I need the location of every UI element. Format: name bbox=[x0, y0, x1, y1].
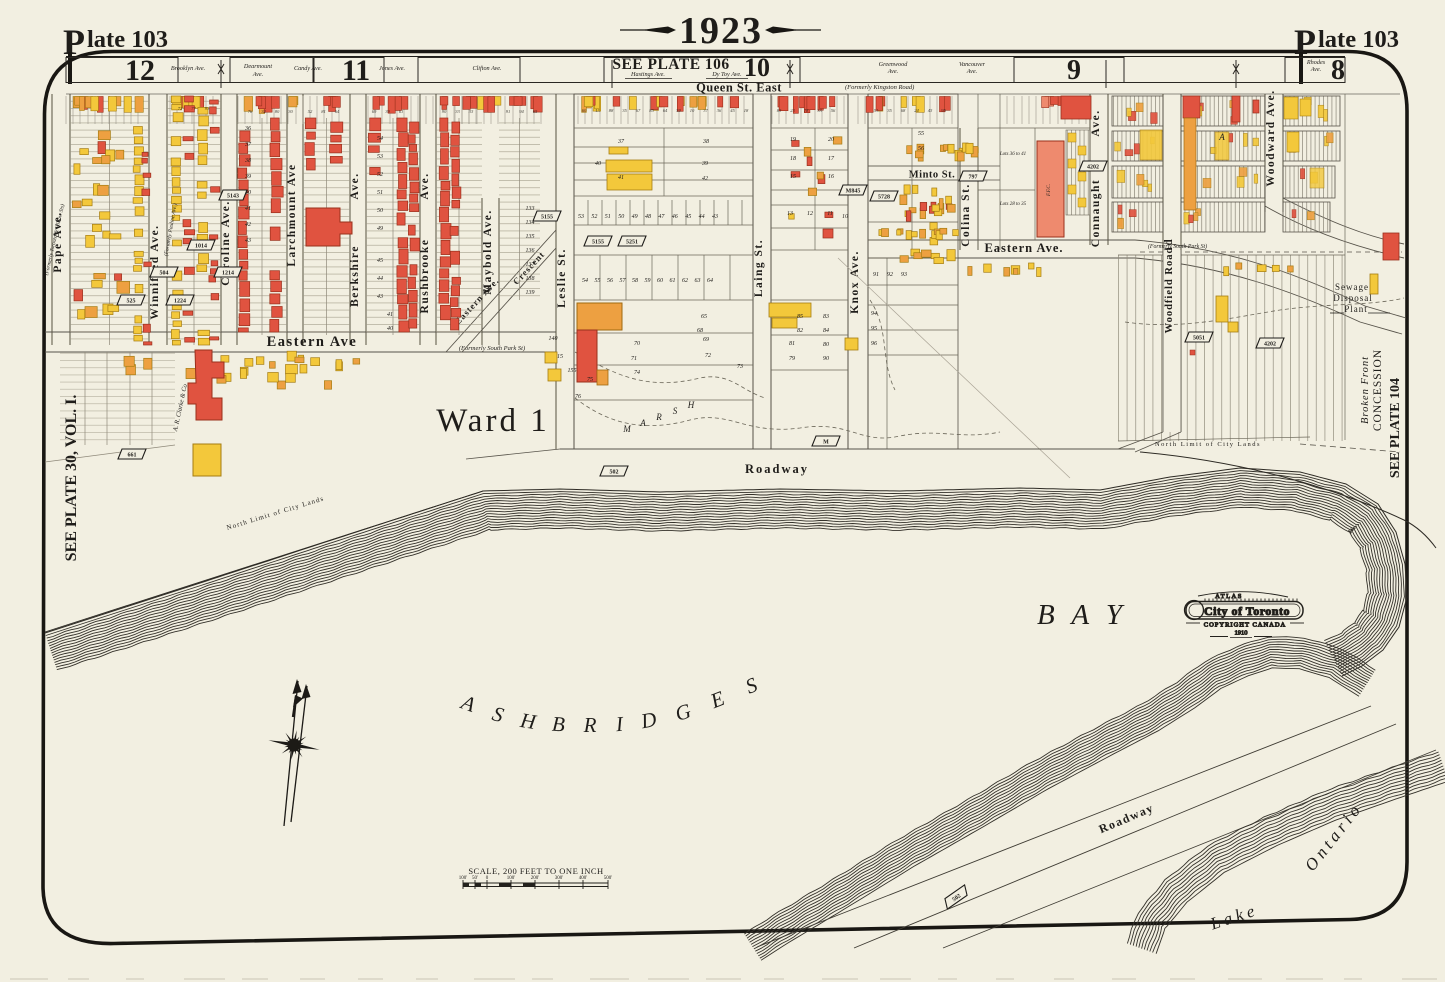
svg-text:A: A bbox=[1218, 132, 1225, 142]
svg-text:18: 18 bbox=[790, 156, 796, 162]
svg-text:79: 79 bbox=[789, 356, 795, 362]
svg-text:53: 53 bbox=[578, 214, 584, 220]
svg-text:50': 50' bbox=[472, 876, 478, 881]
svg-text:SCALE, 200 FEET TO ONE INC: SCALE, 200 FEET TO ONE INCH bbox=[468, 866, 603, 876]
svg-text:525: 525 bbox=[127, 299, 136, 305]
svg-text:65: 65 bbox=[533, 109, 538, 114]
svg-text:60: 60 bbox=[582, 108, 587, 113]
svg-text:15: 15 bbox=[557, 354, 563, 360]
svg-text:55: 55 bbox=[918, 131, 924, 137]
svg-text:33: 33 bbox=[455, 109, 460, 114]
svg-text:35: 35 bbox=[887, 108, 892, 113]
svg-text:17: 17 bbox=[828, 156, 835, 162]
svg-text:37: 37 bbox=[617, 139, 625, 145]
svg-text:136: 136 bbox=[526, 248, 535, 254]
svg-text:R: R bbox=[583, 713, 597, 737]
svg-text:M: M bbox=[622, 424, 631, 434]
svg-text:1014: 1014 bbox=[195, 244, 207, 250]
svg-text:400': 400' bbox=[579, 876, 588, 881]
svg-text:Rhodes: Rhodes bbox=[1306, 59, 1326, 66]
svg-text:Ave.: Ave. bbox=[1090, 109, 1102, 136]
svg-text:B A Y: B A Y bbox=[1037, 599, 1127, 631]
svg-text:Eastern Ave.: Eastern Ave. bbox=[984, 241, 1063, 255]
svg-text:500': 500' bbox=[604, 876, 613, 881]
svg-text:91: 91 bbox=[506, 109, 511, 114]
svg-text:8: 8 bbox=[1331, 55, 1345, 86]
svg-text:100': 100' bbox=[459, 876, 468, 881]
svg-text:late 103: late 103 bbox=[87, 26, 168, 53]
svg-text:40: 40 bbox=[387, 325, 393, 332]
svg-text:30: 30 bbox=[288, 109, 293, 114]
svg-text:61: 61 bbox=[670, 278, 676, 284]
svg-text:Colina St.: Colina St. bbox=[960, 183, 972, 247]
svg-text:Leslie St.: Leslie St. bbox=[556, 248, 568, 308]
svg-text:95: 95 bbox=[871, 326, 877, 332]
svg-text:50: 50 bbox=[377, 208, 383, 214]
svg-text:502: 502 bbox=[610, 470, 619, 476]
svg-text:(Formerly South Park St): (Formerly South Park St) bbox=[459, 345, 525, 352]
svg-text:155: 155 bbox=[568, 368, 577, 374]
svg-text:57: 57 bbox=[620, 278, 627, 284]
svg-text:88: 88 bbox=[609, 108, 614, 113]
svg-text:661: 661 bbox=[128, 453, 137, 459]
svg-text:SEE PLATE 104: SEE PLATE 104 bbox=[1388, 378, 1403, 478]
svg-text:1214: 1214 bbox=[222, 271, 234, 277]
svg-text:82: 82 bbox=[797, 328, 803, 334]
svg-text:139: 139 bbox=[526, 290, 535, 296]
svg-text:F.F.C.: F.F.C. bbox=[1047, 184, 1052, 197]
svg-text:75: 75 bbox=[587, 377, 593, 383]
svg-text:Berkshire: Berkshire bbox=[349, 245, 361, 307]
svg-text:Greenwood: Greenwood bbox=[879, 61, 909, 68]
svg-text:39: 39 bbox=[385, 109, 390, 114]
svg-text:54: 54 bbox=[377, 135, 383, 142]
svg-text:59: 59 bbox=[676, 108, 681, 113]
svg-text:4202: 4202 bbox=[1087, 165, 1099, 171]
svg-text:60: 60 bbox=[657, 278, 663, 284]
svg-text:45: 45 bbox=[377, 257, 383, 264]
svg-text:5155: 5155 bbox=[592, 240, 604, 246]
svg-text:64: 64 bbox=[707, 277, 713, 284]
svg-text:11: 11 bbox=[342, 54, 370, 87]
svg-text:58: 58 bbox=[632, 278, 638, 284]
svg-text:85: 85 bbox=[797, 314, 803, 320]
svg-text:52: 52 bbox=[591, 214, 597, 220]
svg-text:138: 138 bbox=[526, 276, 535, 282]
svg-text:137: 137 bbox=[526, 262, 536, 268]
svg-text:100': 100' bbox=[507, 876, 516, 881]
svg-text:65: 65 bbox=[701, 314, 707, 320]
svg-text:Laing St.: Laing St. bbox=[753, 239, 765, 297]
svg-text:SEE PLATE 30, VOL. I.: SEE PLATE 30, VOL. I. bbox=[63, 395, 80, 562]
svg-text:CONCESSION: CONCESSION bbox=[1372, 349, 1384, 431]
svg-text:(Formerly Kingston Road): (Formerly Kingston Road) bbox=[845, 84, 914, 91]
svg-text:94: 94 bbox=[871, 310, 877, 317]
svg-text:49: 49 bbox=[632, 213, 638, 220]
svg-text:H: H bbox=[687, 400, 695, 410]
svg-text:91: 91 bbox=[205, 106, 210, 111]
svg-text:38: 38 bbox=[244, 158, 251, 164]
svg-text:13: 13 bbox=[787, 211, 793, 217]
svg-text:Brooklyn Ave.: Brooklyn Ave. bbox=[171, 65, 205, 72]
svg-text:Eastern Ave: Eastern Ave bbox=[267, 334, 358, 350]
svg-text:71: 71 bbox=[631, 356, 637, 362]
svg-text:12: 12 bbox=[807, 211, 813, 217]
svg-text:76: 76 bbox=[575, 394, 581, 400]
svg-text:16: 16 bbox=[828, 174, 834, 180]
svg-text:81: 81 bbox=[789, 341, 795, 347]
svg-text:51: 51 bbox=[605, 214, 611, 220]
svg-text:94: 94 bbox=[519, 109, 524, 114]
svg-text:Queen St. East: Queen St. East bbox=[696, 81, 782, 95]
svg-text:47: 47 bbox=[658, 213, 665, 220]
svg-text:42: 42 bbox=[245, 221, 251, 228]
svg-text:91: 91 bbox=[873, 272, 879, 278]
svg-text:83: 83 bbox=[823, 314, 829, 320]
svg-text:4202: 4202 bbox=[1264, 342, 1276, 348]
svg-text:Ave.: Ave. bbox=[419, 172, 431, 199]
svg-text:51: 51 bbox=[874, 108, 879, 113]
svg-text:15: 15 bbox=[790, 174, 796, 180]
svg-text:74: 74 bbox=[634, 369, 640, 376]
svg-text:46: 46 bbox=[672, 213, 678, 220]
svg-text:70: 70 bbox=[634, 341, 640, 347]
svg-text:64: 64 bbox=[335, 109, 340, 114]
svg-text:Dearmount: Dearmount bbox=[243, 63, 272, 70]
svg-text:Ave.: Ave. bbox=[252, 71, 263, 78]
svg-text:37: 37 bbox=[703, 108, 708, 113]
svg-text:42: 42 bbox=[702, 175, 708, 182]
svg-text:Ward 1: Ward 1 bbox=[436, 403, 549, 439]
svg-text:North Limit of City Lands: North Limit of City Lands bbox=[1155, 441, 1261, 448]
svg-text:40: 40 bbox=[595, 160, 601, 167]
svg-text:5728: 5728 bbox=[878, 195, 890, 201]
svg-text:B: B bbox=[551, 712, 565, 737]
svg-text:5143: 5143 bbox=[227, 194, 239, 200]
svg-text:1910: 1910 bbox=[1235, 630, 1248, 637]
svg-text:(Formerly South Park St): (Formerly South Park St) bbox=[1148, 243, 1207, 250]
svg-text:200': 200' bbox=[531, 876, 540, 881]
svg-text:59: 59 bbox=[645, 278, 651, 284]
svg-text:Vancouver: Vancouver bbox=[959, 61, 986, 68]
svg-text:Lots 36 to 41: Lots 36 to 41 bbox=[999, 152, 1026, 157]
svg-text:81: 81 bbox=[321, 109, 326, 114]
svg-text:56: 56 bbox=[918, 146, 924, 152]
svg-text:67: 67 bbox=[636, 108, 641, 113]
svg-text:32: 32 bbox=[261, 109, 266, 114]
svg-text:A: A bbox=[639, 418, 646, 428]
svg-text:43: 43 bbox=[245, 237, 251, 244]
svg-text:44: 44 bbox=[699, 213, 705, 220]
svg-text:45: 45 bbox=[685, 213, 691, 220]
svg-text:96: 96 bbox=[871, 341, 877, 347]
svg-text:43: 43 bbox=[712, 213, 718, 220]
svg-text:41: 41 bbox=[245, 205, 251, 212]
svg-text:39: 39 bbox=[244, 174, 251, 180]
svg-text:City of Toronto: City of Toronto bbox=[1204, 604, 1290, 618]
svg-text:93: 93 bbox=[901, 272, 907, 278]
svg-text:43: 43 bbox=[928, 108, 933, 113]
svg-text:63: 63 bbox=[695, 278, 701, 284]
svg-text:61: 61 bbox=[399, 109, 404, 114]
svg-text:80: 80 bbox=[823, 342, 829, 348]
svg-text:5051: 5051 bbox=[1193, 336, 1205, 342]
svg-text:10: 10 bbox=[690, 108, 695, 113]
svg-text:Ave.: Ave. bbox=[887, 68, 898, 75]
svg-text:64: 64 bbox=[663, 108, 668, 113]
svg-text:P: P bbox=[63, 22, 85, 62]
svg-text:78: 78 bbox=[804, 108, 809, 113]
svg-text:Broken Front: Broken Front bbox=[1360, 356, 1371, 424]
svg-text:53: 53 bbox=[377, 154, 383, 160]
svg-text:300': 300' bbox=[555, 876, 564, 881]
svg-text:24: 24 bbox=[914, 108, 919, 113]
svg-text:5155: 5155 bbox=[541, 215, 553, 221]
svg-text:80: 80 bbox=[275, 109, 280, 114]
svg-text:83: 83 bbox=[777, 108, 782, 113]
svg-text:135: 135 bbox=[526, 234, 535, 240]
svg-text:Sewage: Sewage bbox=[1335, 282, 1369, 292]
svg-text:19: 19 bbox=[790, 137, 796, 143]
svg-text:54: 54 bbox=[582, 277, 588, 284]
svg-text:COPYRIGHT CANADA: COPYRIGHT CANADA bbox=[1204, 622, 1287, 629]
svg-text:5251: 5251 bbox=[626, 240, 638, 246]
svg-text:72: 72 bbox=[178, 106, 183, 111]
svg-text:52: 52 bbox=[308, 109, 313, 114]
svg-text:Ave.: Ave. bbox=[966, 68, 977, 75]
svg-text:Rushbrooke: Rushbrooke bbox=[419, 239, 431, 314]
svg-text:35: 35 bbox=[622, 108, 627, 113]
svg-text:late 103: late 103 bbox=[1318, 26, 1399, 53]
svg-text:S: S bbox=[673, 406, 678, 416]
svg-text:P: P bbox=[1294, 22, 1316, 62]
svg-text:504: 504 bbox=[160, 271, 169, 277]
svg-text:69: 69 bbox=[372, 109, 377, 114]
svg-text:56: 56 bbox=[831, 108, 836, 113]
svg-text:33: 33 bbox=[817, 108, 822, 113]
svg-text:36: 36 bbox=[717, 108, 722, 113]
svg-text:23: 23 bbox=[790, 108, 795, 113]
svg-text:Disposal: Disposal bbox=[1333, 293, 1373, 303]
svg-text:1224: 1224 bbox=[174, 299, 186, 305]
svg-text:68: 68 bbox=[697, 328, 703, 334]
svg-text:R: R bbox=[655, 412, 662, 422]
svg-text:77: 77 bbox=[191, 106, 196, 111]
svg-text:18: 18 bbox=[744, 108, 749, 113]
svg-text:69: 69 bbox=[703, 337, 709, 343]
svg-text:10: 10 bbox=[842, 214, 848, 220]
svg-text:M: M bbox=[823, 440, 829, 446]
svg-text:Larchmount Ave: Larchmount Ave bbox=[286, 163, 298, 266]
svg-text:55: 55 bbox=[595, 278, 601, 284]
svg-text:12: 12 bbox=[125, 54, 155, 87]
svg-text:797: 797 bbox=[969, 175, 978, 181]
svg-text:Clifton Ave.: Clifton Ave. bbox=[472, 65, 501, 72]
svg-text:43: 43 bbox=[377, 293, 383, 300]
svg-text:39: 39 bbox=[701, 161, 708, 167]
svg-text:45: 45 bbox=[730, 108, 735, 113]
svg-text:1923: 1923 bbox=[679, 10, 763, 52]
svg-text:44: 44 bbox=[377, 275, 383, 282]
svg-text:33: 33 bbox=[469, 109, 474, 114]
svg-text:52: 52 bbox=[377, 172, 383, 178]
svg-text:50: 50 bbox=[618, 214, 624, 220]
svg-text:72: 72 bbox=[705, 353, 711, 359]
svg-text:68: 68 bbox=[901, 108, 906, 113]
svg-text:M845: M845 bbox=[846, 189, 861, 195]
svg-text:36: 36 bbox=[244, 126, 251, 132]
svg-text:Ave.: Ave. bbox=[1310, 66, 1321, 73]
svg-text:11: 11 bbox=[827, 211, 833, 217]
svg-text:85: 85 bbox=[649, 108, 654, 113]
svg-text:84: 84 bbox=[823, 327, 829, 334]
svg-text:41: 41 bbox=[387, 311, 393, 318]
svg-text:73: 73 bbox=[737, 364, 743, 370]
svg-text:133: 133 bbox=[526, 206, 535, 212]
svg-text:10: 10 bbox=[744, 53, 770, 82]
svg-text:Woodfield Road: Woodfield Road bbox=[1164, 247, 1175, 334]
svg-text:Minto St.: Minto St. bbox=[909, 170, 956, 181]
svg-text:37: 37 bbox=[244, 142, 252, 148]
svg-text:Candy Ave.: Candy Ave. bbox=[294, 65, 322, 72]
svg-text:Plant: Plant bbox=[1344, 304, 1368, 314]
svg-text:Knox Ave.: Knox Ave. bbox=[849, 250, 861, 314]
svg-text:62: 62 bbox=[682, 278, 688, 284]
svg-text:48: 48 bbox=[645, 213, 651, 220]
svg-text:Ave.: Ave. bbox=[349, 172, 361, 199]
svg-text:Connaught: Connaught bbox=[1090, 179, 1102, 247]
svg-text:13: 13 bbox=[595, 108, 600, 113]
svg-text:140: 140 bbox=[549, 335, 558, 342]
svg-text:Hastings Ave.: Hastings Ave. bbox=[630, 71, 665, 78]
svg-text:9: 9 bbox=[1067, 55, 1081, 86]
svg-text:95: 95 bbox=[941, 108, 946, 113]
svg-text:20: 20 bbox=[828, 137, 834, 143]
svg-text:Woodward Ave.: Woodward Ave. bbox=[1265, 89, 1277, 186]
svg-text:76: 76 bbox=[248, 109, 253, 114]
svg-text:41: 41 bbox=[618, 174, 624, 181]
svg-text:90: 90 bbox=[442, 109, 447, 114]
svg-text:51: 51 bbox=[377, 190, 383, 196]
svg-text:38: 38 bbox=[702, 139, 709, 145]
svg-text:Dy Toy Ave.: Dy Toy Ave. bbox=[711, 71, 741, 78]
svg-text:92: 92 bbox=[887, 272, 893, 278]
svg-text:49: 49 bbox=[377, 225, 383, 232]
svg-text:90: 90 bbox=[823, 356, 829, 362]
svg-text:Jones Ave.: Jones Ave. bbox=[379, 65, 405, 72]
svg-text:56: 56 bbox=[607, 278, 613, 284]
svg-text:Roadway: Roadway bbox=[745, 462, 809, 476]
svg-text:Lots 28 to 35: Lots 28 to 35 bbox=[999, 202, 1027, 207]
